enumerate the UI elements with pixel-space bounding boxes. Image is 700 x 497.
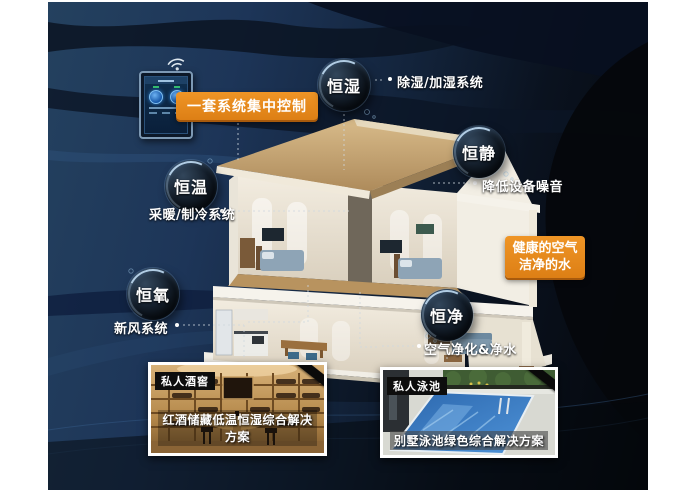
label-air-water-purification: 空气净化&净水 [424, 339, 517, 358]
bubble-label: 恒净 [430, 303, 464, 327]
wine-cellar-caption: 红酒储藏低温恒湿综合解决方案 [158, 410, 317, 446]
bubble-label: 恒温 [174, 174, 208, 198]
wine-cellar-card: 私人酒窖 红酒储藏低温恒湿综合解决方案 [148, 362, 327, 456]
healthy-air-water-banner: 健康的空气 洁净的水 [505, 236, 585, 278]
healthy-air-line: 健康的空气 [507, 240, 583, 257]
phone-status-dots [145, 86, 187, 88]
pool-badge: 私人泳池 [387, 377, 447, 395]
bubble-label: 恒静 [462, 140, 496, 164]
phone-knob-left [149, 90, 163, 104]
clean-water-line: 洁净的水 [507, 257, 583, 274]
bubble-label: 恒湿 [327, 73, 361, 97]
bubble-constant-humidity: 恒湿 [318, 59, 370, 111]
bubble-label: 恒氧 [136, 282, 170, 306]
phone-header-bar [145, 77, 187, 84]
label-fresh-air-system: 新风系统 [114, 318, 168, 337]
wine-cellar-photo: 私人酒窖 红酒储藏低温恒湿综合解决方案 [151, 365, 324, 453]
bubble-constant-oxygen: 恒氧 [127, 268, 179, 320]
poster-root: 一套系统集中控制 健康的空气 洁净的水 恒湿 恒静 恒温 恒氧 恒净 除湿/加湿… [0, 0, 700, 497]
label-noise-reduction: 降低设备噪音 [482, 176, 563, 195]
bubble-constant-quiet: 恒静 [453, 126, 505, 178]
label-heating-cooling-system: 采暖/制冷系统 [149, 204, 235, 223]
label-dehumidify-system: 除湿/加湿系统 [397, 72, 483, 91]
wine-cellar-badge: 私人酒窖 [155, 372, 215, 390]
pool-caption: 别墅泳池绿色综合解决方案 [390, 431, 548, 450]
bubble-constant-purity: 恒净 [421, 289, 473, 341]
central-control-banner: 一套系统集中控制 [176, 92, 318, 120]
pool-photo: 私人泳池 别墅泳池绿色综合解决方案 [383, 370, 555, 455]
pool-card: 私人泳池 别墅泳池绿色综合解决方案 [380, 367, 558, 458]
